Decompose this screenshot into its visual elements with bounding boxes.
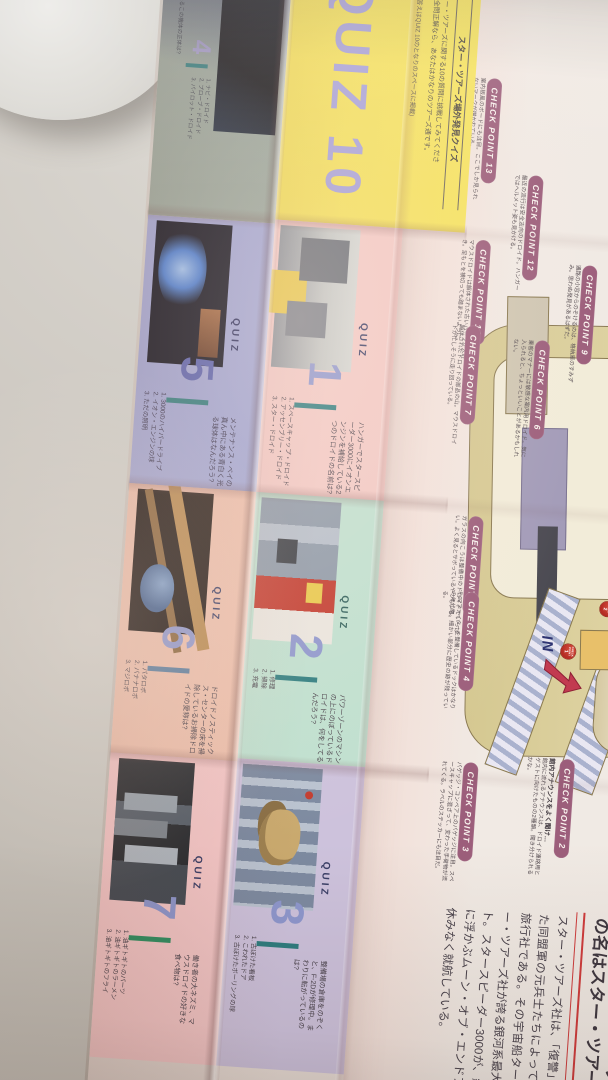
in-arrow-icon: [542, 654, 584, 701]
quiz-accent-bar: [256, 941, 298, 949]
quiz-number: 1: [302, 360, 350, 389]
quiz-options: 1. 3000のハイパードライブ2. イオン・エンジンの球3. ただの照明: [135, 391, 167, 489]
quiz-options: 1. 油ギトギトのパーツ2. 油ギトギトのラーメン3. 油ギトギトのフライ: [97, 928, 129, 1026]
quiz-question: 整備場の倉庫をのぞくと、F-2Dが修理中。まわりに転がっているのは?: [286, 958, 327, 1034]
quiz-label: QUIZ: [318, 861, 331, 898]
quiz-accent-bar: [129, 935, 171, 943]
quiz10-panel: スター・ツアーズ場外発見クイズ スター・ツアーズに関する10の質問に挑戦してみて…: [275, 0, 482, 233]
quiz10-big-label: QUIZ 10: [313, 0, 386, 202]
quiz-photo: [128, 489, 214, 636]
quiz-options: 1. パタロボ2. バナナロボ3. マジロボ: [116, 659, 148, 757]
quiz-photo: [147, 220, 233, 367]
quiz-photo: [109, 758, 195, 905]
quiz-accent-bar: [275, 675, 317, 683]
quiz-label: QUIZ: [228, 318, 241, 355]
intro-text: スター・ツアーズ社は、「復讐」で勝利をおさめた同盟軍の元兵士たちによって設立され…: [424, 907, 572, 1080]
quiz-number: 3: [264, 899, 312, 928]
quiz-options: 1. スペースキャップ・ドロイド2. アッセンブリー・ドロイド3. スター・ドロ…: [263, 396, 295, 494]
quiz-options: 1. 修理2. 掃除3. 充電: [244, 668, 276, 766]
quiz-question: パワーゾーンのマシンの上にのぼっているドロイドは、何をしてるんだろう?: [305, 692, 346, 767]
quiz-label: QUIZ: [356, 323, 369, 360]
quiz-number: 6: [155, 623, 203, 652]
quiz-question: 働き者の大ネズミ、マウスドロイドの好きな食べ物は?: [167, 953, 199, 1029]
quiz-number: 7: [136, 893, 184, 922]
quiz-accent-bar: [294, 402, 336, 410]
quiz-photo: [271, 225, 361, 372]
checkpoint-6: CHECK POINT 6乗客のマナーには敏感な案内用ドロイド。気に入られると、…: [503, 338, 553, 459]
quiz-label: QUIZ: [209, 586, 222, 623]
quiz-photo: [252, 497, 342, 644]
quiz-label: QUIZ: [190, 855, 203, 892]
checkpoint-4: CHECK POINT 4F-22ファイターを整備しているドックはかなりの年代物…: [432, 590, 482, 711]
checkpoint-badge: CHECK POINT2: [599, 601, 608, 617]
pamphlet: IN CHECK POINT5 CHECK POINT4 CHECK POINT…: [0, 0, 608, 1080]
quiz-number: 2: [283, 632, 331, 661]
quiz-photo: [233, 764, 323, 911]
checkpoint-badge: CHECK POINT1: [560, 644, 576, 660]
photo-frame: IN CHECK POINT5 CHECK POINT4 CHECK POINT…: [0, 0, 608, 1080]
quiz-options: 1. 古ぼけた看板2. こわれたドア3. 古ぼけたボーリングの球: [225, 934, 257, 1032]
quiz-label: QUIZ: [337, 595, 350, 632]
entrance-door: [580, 630, 608, 671]
quiz-accent-bar: [147, 666, 189, 674]
quiz-accent-bar: [166, 397, 208, 405]
quiz-question: ハンガーでスタースピーダー3000にイオンエンジンを補給している2つのドロイドの…: [324, 420, 365, 496]
in-label: IN: [538, 635, 556, 653]
quiz-number: 5: [174, 355, 222, 384]
